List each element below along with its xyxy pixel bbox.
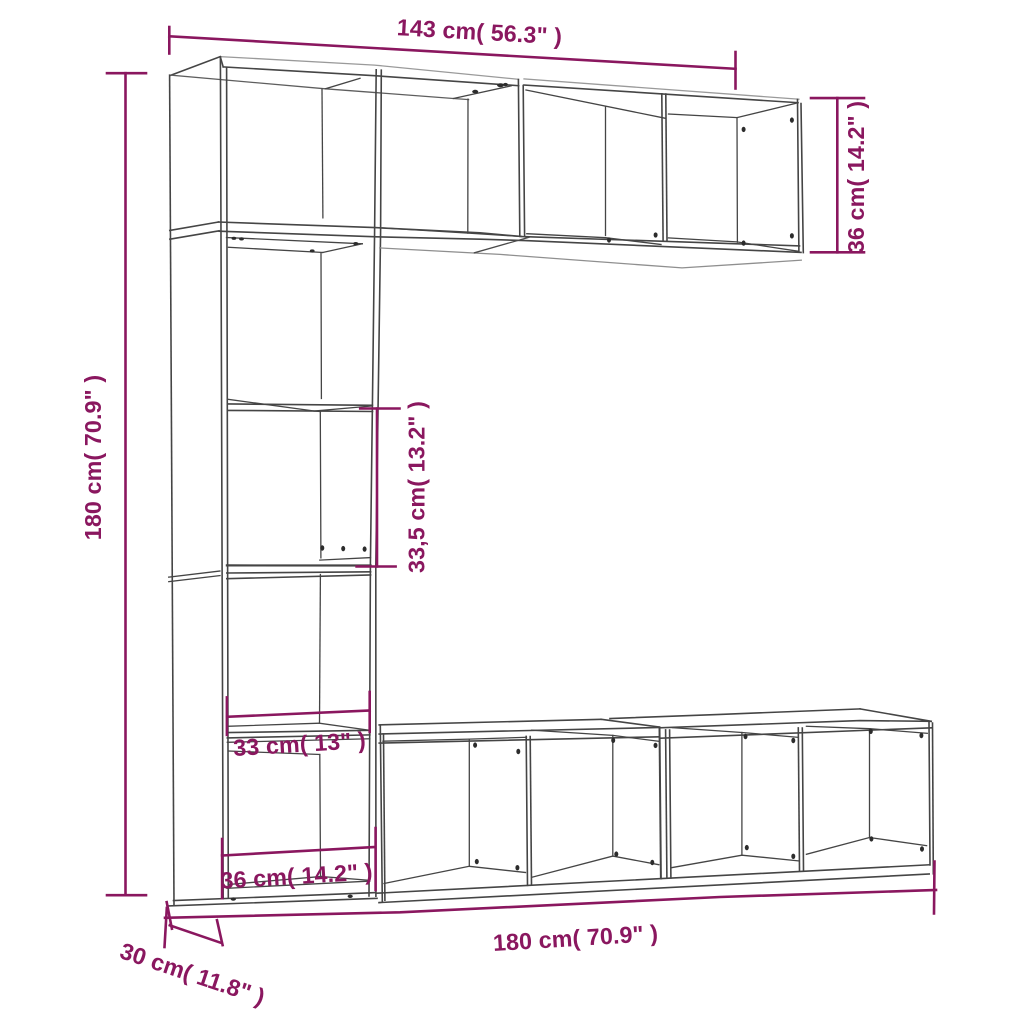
svg-text:180 cm( 70.9" ): 180 cm( 70.9" ) bbox=[80, 375, 106, 540]
svg-text:33,5 cm( 13.2" ): 33,5 cm( 13.2" ) bbox=[404, 401, 430, 573]
svg-text:36 cm( 14.2" ): 36 cm( 14.2" ) bbox=[843, 101, 869, 253]
svg-text:180 cm( 70.9" ): 180 cm( 70.9" ) bbox=[492, 920, 659, 956]
svg-text:30 cm( 11.8" ): 30 cm( 11.8" ) bbox=[117, 938, 268, 1011]
svg-text:36 cm( 14.2" ): 36 cm( 14.2" ) bbox=[220, 858, 374, 893]
svg-text:143 cm( 56.3" ): 143 cm( 56.3" ) bbox=[396, 14, 563, 49]
